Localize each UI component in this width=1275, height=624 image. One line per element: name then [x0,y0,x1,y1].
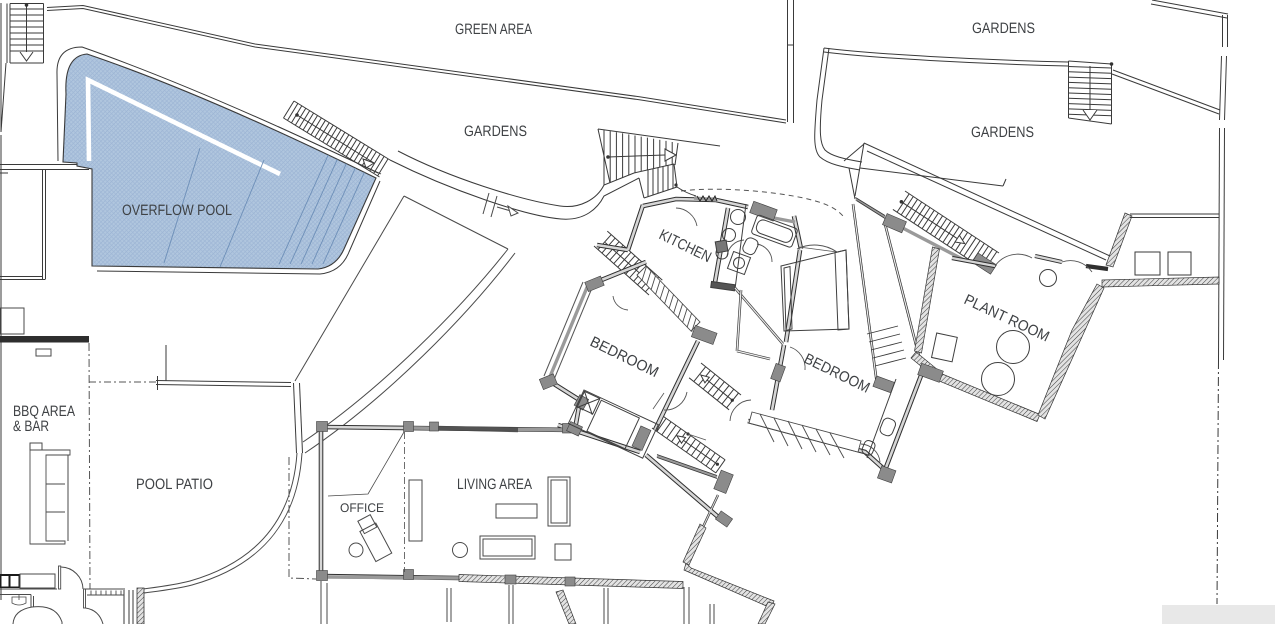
svg-text:GREEN AREA: GREEN AREA [455,21,532,38]
svg-text:& BAR: & BAR [13,418,49,435]
svg-text:OVERFLOW POOL: OVERFLOW POOL [122,202,232,219]
svg-text:GARDENS: GARDENS [972,20,1035,37]
svg-text:OFFICE: OFFICE [340,501,384,515]
svg-text:LIVING AREA: LIVING AREA [457,476,532,493]
svg-text:GARDENS: GARDENS [464,123,527,140]
svg-text:GARDENS: GARDENS [971,124,1034,141]
svg-text:POOL PATIO: POOL PATIO [136,476,213,493]
